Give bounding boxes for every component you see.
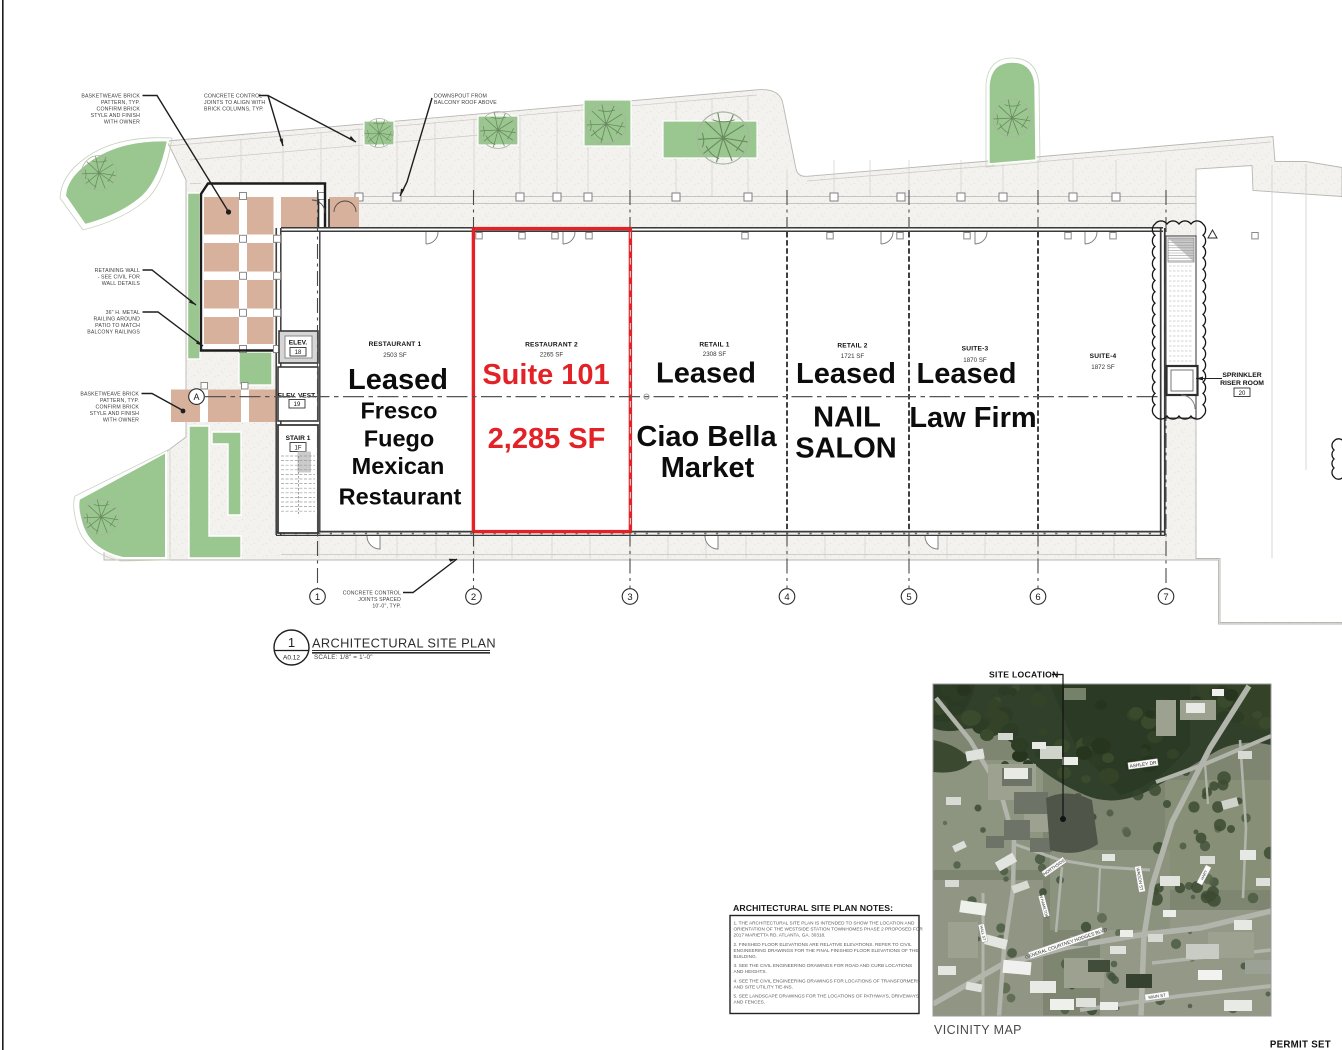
svg-text:36" H. METAL: 36" H. METAL: [106, 310, 140, 316]
svg-text:Fuego: Fuego: [364, 426, 435, 452]
svg-text:WALL DETAILS: WALL DETAILS: [102, 281, 141, 287]
svg-text:Leased: Leased: [917, 358, 1017, 390]
svg-text:Leased: Leased: [796, 358, 896, 390]
svg-text:RESTAURANT 1: RESTAURANT 1: [369, 341, 422, 348]
svg-text:BRICK COLUMNS, TYP.: BRICK COLUMNS, TYP.: [204, 107, 264, 113]
svg-text:- SEE CIVIL FOR: - SEE CIVIL FOR: [98, 275, 141, 281]
svg-text:CONCRETE CONTROL: CONCRETE CONTROL: [204, 94, 262, 100]
svg-text:A: A: [193, 392, 199, 402]
svg-text:RETAIL 1: RETAIL 1: [699, 342, 729, 349]
svg-text:STYLE AND FINISH: STYLE AND FINISH: [90, 411, 139, 417]
svg-text:NAIL: NAIL: [813, 402, 881, 434]
svg-text:PERMIT SET: PERMIT SET: [1270, 1040, 1331, 1050]
svg-text:2017 MARIETTA RD. ATLANTA, GA.: 2017 MARIETTA RD. ATLANTA, GA. 30318.: [734, 933, 826, 938]
svg-text:DOWNSPOUT FROM: DOWNSPOUT FROM: [434, 94, 487, 100]
svg-text:SPRINKLER: SPRINKLER: [1222, 372, 1261, 379]
svg-text:WITH OWNER: WITH OWNER: [104, 120, 140, 126]
svg-text:20: 20: [1239, 391, 1246, 397]
svg-text:AND HEIGHTS.: AND HEIGHTS.: [734, 969, 767, 974]
svg-text:5: 5: [906, 592, 911, 603]
svg-text:CONFIRM BRICK: CONFIRM BRICK: [96, 405, 140, 411]
svg-text:4: 4: [784, 592, 789, 603]
svg-text:RISER ROOM: RISER ROOM: [1220, 380, 1264, 387]
svg-text:BUILDING.: BUILDING.: [734, 954, 757, 959]
svg-text:CONCRETE CONTROL: CONCRETE CONTROL: [343, 591, 401, 597]
svg-text:19: 19: [294, 402, 301, 408]
svg-text:RETAIL 2: RETAIL 2: [837, 343, 867, 350]
svg-text:STAIR 1: STAIR 1: [286, 435, 311, 442]
svg-text:Leased: Leased: [656, 358, 756, 390]
svg-text:2503 SF: 2503 SF: [383, 352, 407, 359]
svg-text:2,285 SF: 2,285 SF: [488, 423, 606, 455]
svg-text:Leased: Leased: [348, 364, 448, 396]
svg-text:PATTERN, TYP.: PATTERN, TYP.: [100, 398, 139, 404]
svg-text:RETAINING WALL: RETAINING WALL: [95, 268, 140, 274]
svg-text:ARCHITECTURAL SITE PLAN NOTES:: ARCHITECTURAL SITE PLAN NOTES:: [733, 903, 893, 913]
svg-text:ARCHITECTURAL SITE PLAN: ARCHITECTURAL SITE PLAN: [312, 636, 496, 651]
svg-text:SITE LOCATION: SITE LOCATION: [989, 670, 1059, 680]
svg-text:1872 SF: 1872 SF: [1091, 364, 1115, 371]
svg-text:7: 7: [1163, 592, 1168, 603]
svg-text:WITH OWNER: WITH OWNER: [103, 418, 139, 424]
svg-text:2: 2: [471, 592, 476, 603]
svg-text:ENGINEERING DRAWINGS FOR THE F: ENGINEERING DRAWINGS FOR THE FINAL FINIS…: [734, 948, 919, 953]
svg-text:RESTAURANT 2: RESTAURANT 2: [525, 342, 578, 349]
svg-text:RAILING AROUND: RAILING AROUND: [94, 317, 141, 323]
svg-text:VICINITY MAP: VICINITY MAP: [934, 1023, 1022, 1037]
svg-text:6: 6: [1035, 592, 1040, 603]
svg-text:BASKETWEAVE BRICK: BASKETWEAVE BRICK: [80, 392, 139, 398]
svg-text:1: 1: [315, 592, 320, 603]
svg-text:JOINTS TO ALIGN WITH: JOINTS TO ALIGN WITH: [204, 100, 265, 106]
svg-text:1: 1: [288, 635, 295, 650]
svg-text:5. SEE LANDSCAPE DRAWINGS FOR: 5. SEE LANDSCAPE DRAWINGS FOR THE LOCATI…: [734, 994, 919, 999]
svg-text:Mexican: Mexican: [352, 453, 445, 479]
svg-text:Market: Market: [661, 452, 755, 484]
svg-text:Fresco: Fresco: [360, 398, 437, 424]
svg-text:A0.12: A0.12: [283, 655, 300, 662]
svg-text:CONFIRM BRICK: CONFIRM BRICK: [97, 107, 141, 113]
svg-text:10'-0", TYP.: 10'-0", TYP.: [372, 604, 401, 610]
svg-text:STYLE AND FINISH: STYLE AND FINISH: [91, 113, 140, 119]
svg-text:Ciao Bella: Ciao Bella: [636, 421, 777, 453]
svg-text:2265 SF: 2265 SF: [540, 352, 564, 359]
svg-text:4. SEE THE CIVIL ENGINEERING D: 4. SEE THE CIVIL ENGINEERING DRAWINGS FO…: [734, 978, 921, 983]
svg-text:1F: 1F: [294, 446, 301, 452]
svg-text:1. THE ARCHITECTURAL SITE PLAN: 1. THE ARCHITECTURAL SITE PLAN IS INTEND…: [734, 921, 916, 926]
svg-text:Restaurant: Restaurant: [339, 484, 462, 510]
svg-text:JOINTS SPACED: JOINTS SPACED: [358, 597, 401, 603]
svg-text:PATIO TO MATCH: PATIO TO MATCH: [95, 323, 140, 329]
svg-text:18: 18: [295, 350, 302, 356]
svg-text:Law Firm: Law Firm: [909, 402, 1036, 434]
svg-text:BASKETWEAVE BRICK: BASKETWEAVE BRICK: [81, 94, 140, 100]
svg-text:SUITE-4: SUITE-4: [1090, 353, 1117, 360]
svg-text:2. FINISHED FLOOR ELEVATIONS A: 2. FINISHED FLOOR ELEVATIONS ARE RELATIV…: [734, 942, 912, 947]
svg-text:SUITE-3: SUITE-3: [962, 346, 989, 353]
svg-text:AND FENCES.: AND FENCES.: [734, 1000, 766, 1005]
svg-text:SALON: SALON: [795, 432, 897, 464]
svg-text:SCALE: 1/8" = 1'-0": SCALE: 1/8" = 1'-0": [314, 654, 373, 661]
svg-text:PATTERN, TYP.: PATTERN, TYP.: [101, 100, 140, 106]
svg-text:BALCONY ROOF ABOVE: BALCONY ROOF ABOVE: [434, 100, 497, 106]
svg-text:BALCONY RAILINGS: BALCONY RAILINGS: [87, 330, 140, 336]
svg-text:AND SITE UTILITY TIE-INS.: AND SITE UTILITY TIE-INS.: [734, 984, 793, 989]
svg-text:ELEV.: ELEV.: [289, 340, 308, 347]
svg-text:Suite 101: Suite 101: [482, 359, 609, 391]
svg-text:3: 3: [627, 592, 632, 603]
svg-text:3. SEE THE CIVIL ENGINEERING D: 3. SEE THE CIVIL ENGINEERING DRAWINGS FO…: [734, 963, 913, 968]
svg-text:ORIENTATION OF THE WESTSIDE ST: ORIENTATION OF THE WESTSIDE STATION TOWN…: [734, 927, 924, 932]
